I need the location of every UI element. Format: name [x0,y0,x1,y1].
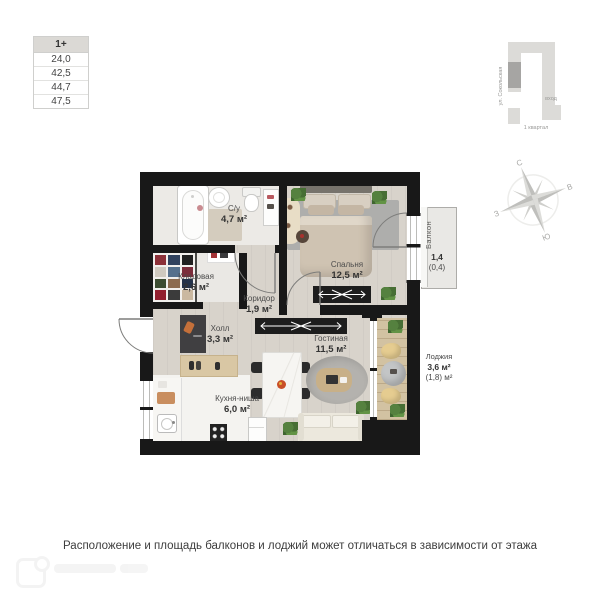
label-living: Гостиная11,5 м² [314,334,348,357]
building-site-plan: ул. Сокольская вход 1 квартал [495,28,595,138]
label-corridor: Коридор1,9 м² [243,294,275,317]
label-bathroom: С/у4,7 м² [221,204,247,227]
plan-type-header: 1+ [34,37,88,53]
compass-west-label: З [493,209,501,219]
area-row: 47,5 [34,95,88,108]
apartment-floorplan: С/у4,7 м² Кладовая2,6 м² Коридор1,9 м² Х… [140,172,460,455]
highlighted-section [508,62,521,88]
area-summary-table: 1+ 24,0 42,5 44,7 47,5 [33,36,89,109]
area-row: 42,5 [34,67,88,81]
watermark-logo [16,556,166,590]
floorplan-page: 1+ 24,0 42,5 44,7 47,5 ул. Сокольская вх… [0,0,600,600]
area-row: 24,0 [34,53,88,67]
entrance-label: вход [541,96,561,102]
label-balcony-area: 1,4 (0,4) [429,252,445,273]
area-row: 44,7 [34,81,88,95]
compass-east-label: В [566,182,574,192]
disclaimer-text: Расположение и площадь балконов и лоджий… [0,540,600,552]
label-balcony-name: Балкон [424,216,436,254]
doors-windows-overlay [115,172,460,455]
street-name-label: ул. Сокольская [498,56,504,116]
building-block [508,108,520,124]
compass-south-label: Ю [541,232,552,243]
compass-north-label: С [515,158,524,168]
block-label: 1 квартал [511,125,561,131]
entrance-block [542,105,561,120]
compass-rose: С В Ю З [491,158,576,243]
label-hall: Холл3,3 м² [207,324,233,347]
label-loggia: Лоджия 3,6 м² (1,8) м² [426,352,453,383]
label-kitchen: Кухня-ниша6,0 м² [215,394,259,417]
label-bedroom: Спальня12,5 м² [331,260,363,283]
label-storage: Кладовая2,6 м² [178,272,214,295]
